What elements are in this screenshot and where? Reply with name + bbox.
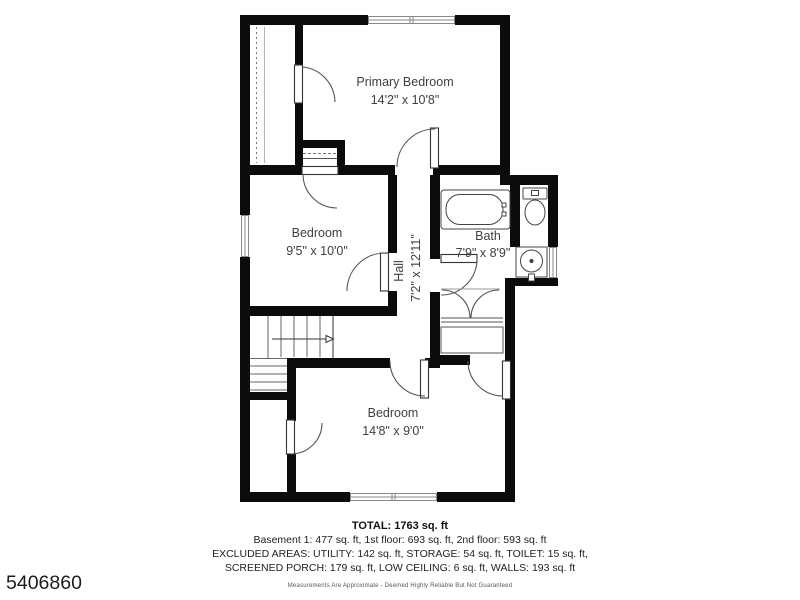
tub-faucet	[502, 212, 506, 216]
toilet	[523, 188, 547, 225]
wall-segment	[433, 165, 510, 175]
window-bath	[548, 247, 558, 278]
room-dims-primary-bedroom: 14'2" x 10'8"	[371, 93, 440, 107]
wall-segment	[287, 358, 390, 368]
listing-id: 5406860	[6, 572, 82, 595]
toilet-bowl	[525, 200, 545, 225]
wall-segment	[287, 453, 296, 502]
wall-segment	[500, 15, 510, 185]
room-label-primary-bedroom: Primary Bedroom	[356, 75, 453, 89]
wall-segment	[240, 15, 250, 502]
bathtub	[441, 190, 510, 229]
room-label-bath: Bath	[475, 229, 501, 243]
disclaimer: Measurements Are Approximate - Deemed Hi…	[0, 579, 800, 593]
wall-segment	[240, 392, 296, 400]
page-background	[0, 0, 800, 600]
floor-areas: Basement 1: 477 sq. ft, 1st floor: 693 s…	[0, 533, 800, 547]
excluded-areas-line2: SCREENED PORCH: 179 sq. ft, LOW CEILING:…	[0, 561, 800, 575]
area-summary: TOTAL: 1763 sq. ft Basement 1: 477 sq. f…	[0, 519, 800, 593]
room-dims-bedroom3: 14'8" x 9'0"	[362, 424, 424, 438]
room-label-bedroom2: Bedroom	[292, 226, 343, 240]
window-left	[240, 215, 250, 257]
wall-segment	[388, 175, 397, 253]
wall-segment	[295, 25, 303, 67]
wall-segment	[250, 306, 397, 316]
wall-segment	[287, 358, 296, 421]
excluded-areas-line1: EXCLUDED AREAS: UTILITY: 142 sq. ft, STO…	[0, 547, 800, 561]
sink	[516, 247, 547, 281]
sink-tap	[529, 274, 535, 281]
wall-segment	[295, 103, 303, 165]
floor-plan: Primary Bedroom 14'2" x 10'8" Bedroom 9'…	[0, 0, 800, 600]
room-dims-hall: 7'2" x 12'11"	[409, 234, 423, 302]
window-top	[368, 15, 455, 25]
wall-segment	[430, 292, 440, 358]
tub-faucet	[502, 203, 506, 207]
wall-segment	[240, 165, 303, 175]
wall-segment	[430, 175, 440, 259]
wall-segment	[510, 185, 520, 247]
room-label-bedroom3: Bedroom	[368, 406, 419, 420]
wall-segment	[345, 165, 395, 175]
total-area: TOTAL: 1763 sq. ft	[0, 519, 800, 533]
room-dims-bedroom2: 9'5" x 10'0"	[286, 244, 348, 258]
sink-drain	[530, 259, 533, 262]
room-dims-bath: 7'9" x 8'9"	[456, 246, 511, 260]
room-label-hall: Hall	[392, 260, 406, 282]
window-bottom	[350, 492, 437, 502]
